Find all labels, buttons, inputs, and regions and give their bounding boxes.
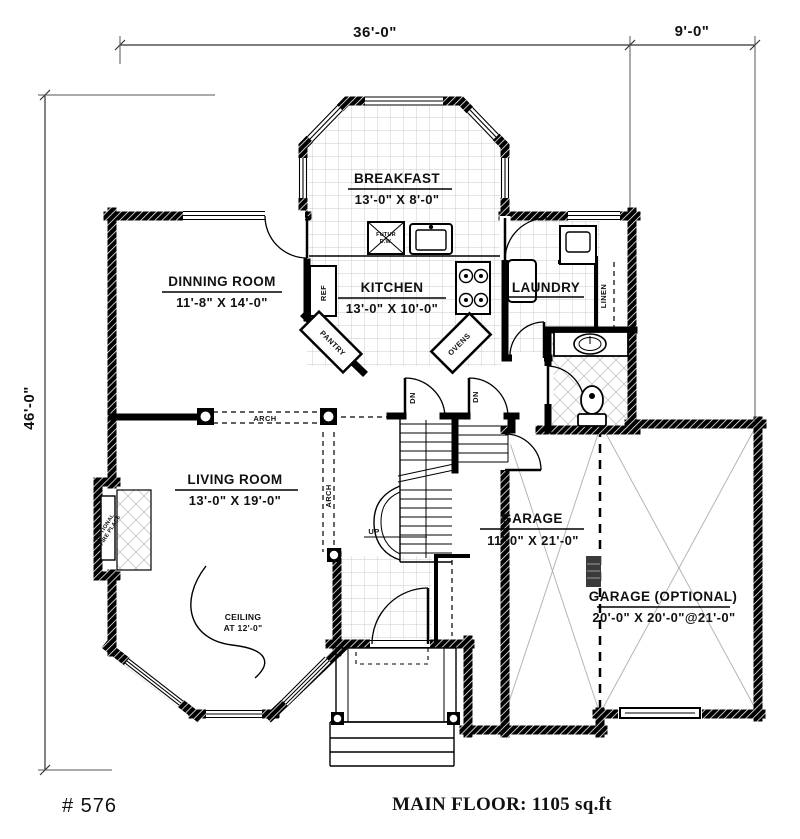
arch-label-horizontal: ARCH bbox=[253, 414, 276, 423]
laundry-window bbox=[568, 212, 620, 220]
arch-column bbox=[320, 408, 337, 425]
arch-column bbox=[327, 548, 341, 562]
garage-optional-label: GARAGE (OPTIONAL) bbox=[589, 589, 738, 604]
stairs-dn-right-label: DN bbox=[471, 391, 480, 403]
future-dw-label-line1: FUTUR bbox=[376, 232, 396, 238]
dining-window bbox=[183, 212, 268, 220]
future-dishwasher bbox=[368, 222, 404, 254]
garage-markings bbox=[507, 428, 755, 710]
porch bbox=[330, 648, 460, 766]
kitchen-size: 13'-0" X 10'-0" bbox=[346, 301, 438, 316]
hearth bbox=[117, 490, 151, 570]
stair-rail-curve bbox=[374, 486, 400, 560]
cooktop-stove bbox=[456, 262, 490, 314]
arch-label-vertical: ARCH bbox=[324, 484, 333, 507]
kitchen-sink bbox=[410, 224, 452, 254]
garage-entry-door bbox=[505, 434, 541, 470]
dining-kitchen-door bbox=[265, 216, 307, 258]
garage-optional-size: 20'-0" X 20'-0"@21'-0" bbox=[592, 610, 735, 625]
dimension-top-right: 9'-0" bbox=[675, 23, 710, 40]
dimension-left-total: 46'-0" bbox=[21, 386, 38, 430]
stair-rail-curve-inner bbox=[381, 492, 400, 554]
garage-door bbox=[618, 708, 702, 718]
dimension-top-main: 36'-0" bbox=[353, 24, 397, 41]
floor-plan-drawing: 36'-0" 9'-0" 46'-0" BREAKFAST 13'-0" X 8… bbox=[0, 0, 800, 839]
arch-column bbox=[197, 408, 214, 425]
garage-post bbox=[586, 556, 601, 587]
porch-steps bbox=[330, 722, 454, 766]
ceiling-note-line2: AT 12'-0" bbox=[224, 623, 263, 633]
footer: # 576 MAIN FLOOR: 1105 sq.ft bbox=[62, 794, 612, 817]
porch-column bbox=[331, 712, 344, 725]
dinning-room-size: 11'-8" X 14'-0" bbox=[176, 295, 268, 310]
stairs-up-label: UP bbox=[368, 527, 379, 536]
entry-canopy bbox=[356, 648, 428, 664]
dryer bbox=[560, 226, 596, 264]
foyer-tile-floor bbox=[341, 556, 432, 640]
garage-size: 11'-0" X 21'-0" bbox=[487, 533, 579, 548]
main-floor-area: MAIN FLOOR: 1105 sq.ft bbox=[392, 794, 612, 815]
toilet bbox=[578, 386, 606, 426]
refrigerator-label: REF bbox=[319, 285, 328, 301]
vanity-sink bbox=[554, 332, 628, 356]
ceiling-note-leader bbox=[191, 566, 265, 678]
living-room-size: 13'-0" X 19'-0" bbox=[189, 493, 281, 508]
living-room-label: LIVING ROOM bbox=[187, 472, 282, 487]
breakfast-size: 13'-0" X 8'-0" bbox=[355, 192, 440, 207]
stairs-dn-left-label: DN bbox=[408, 392, 417, 404]
living-bay-windows bbox=[125, 657, 329, 718]
floor-plan-page: 36'-0" 9'-0" 46'-0" BREAKFAST 13'-0" X 8… bbox=[0, 0, 800, 839]
kitchen-label: KITCHEN bbox=[361, 280, 424, 295]
breakfast-label: BREAKFAST bbox=[354, 171, 440, 186]
ceiling-note-line1: CEILING bbox=[225, 612, 262, 622]
future-dw-label-line2: D.W. bbox=[380, 239, 393, 245]
porch-column bbox=[447, 712, 460, 725]
garage-label: GARAGE bbox=[501, 511, 563, 526]
linen-label: LINEN bbox=[599, 284, 608, 309]
dinning-room-label: DINNING ROOM bbox=[168, 274, 276, 289]
plan-number: # 576 bbox=[62, 795, 117, 817]
laundry-label: LAUNDRY bbox=[512, 280, 580, 295]
